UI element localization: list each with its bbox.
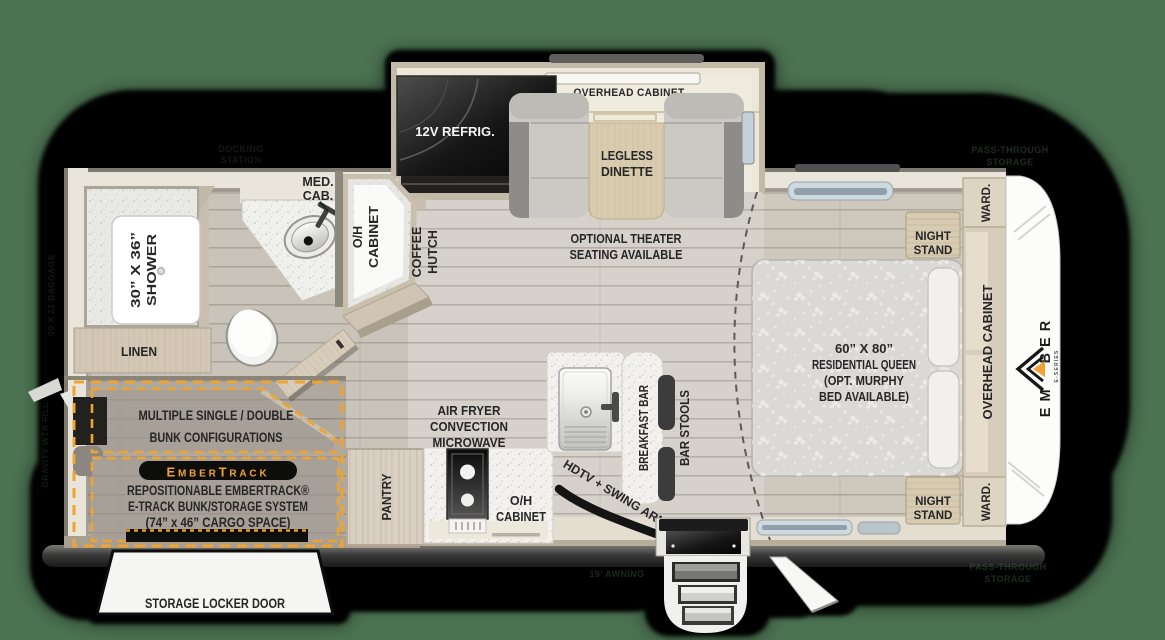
svg-text:30 X 22 BAGGAGE: 30 X 22 BAGGAGE xyxy=(46,254,56,336)
svg-text:12V REFRIG.: 12V REFRIG. xyxy=(415,124,494,139)
svg-text:PASS-THROUGH: PASS-THROUGH xyxy=(969,562,1046,572)
svg-text:STATION: STATION xyxy=(221,155,262,165)
svg-text:STORAGE: STORAGE xyxy=(984,574,1031,584)
svg-text:MICROWAVE: MICROWAVE xyxy=(433,436,506,450)
svg-text:BREAKFAST BAR: BREAKFAST BAR xyxy=(636,385,651,471)
svg-text:SHOWER: SHOWER xyxy=(144,233,159,306)
svg-text:30” X 36”: 30” X 36” xyxy=(128,232,143,308)
svg-text:HUTCH: HUTCH xyxy=(426,230,440,274)
svg-text:19’ AWNING: 19’ AWNING xyxy=(589,569,644,579)
svg-text:COFFEE: COFFEE xyxy=(410,227,424,278)
svg-text:E-TRACK BUNK/STORAGE SYSTEM: E-TRACK BUNK/STORAGE SYSTEM xyxy=(128,499,308,514)
svg-text:LEGLESS: LEGLESS xyxy=(601,148,653,163)
svg-text:MULTIPLE SINGLE / DOUBLE: MULTIPLE SINGLE / DOUBLE xyxy=(139,408,294,423)
svg-text:DOCKING: DOCKING xyxy=(218,144,263,154)
svg-text:WARD.: WARD. xyxy=(981,184,993,222)
svg-text:GRAVITY WTR FILL: GRAVITY WTR FILL xyxy=(40,402,50,487)
svg-text:CAB.: CAB. xyxy=(303,189,334,203)
svg-text:NIGHT: NIGHT xyxy=(915,496,951,508)
svg-text:PANTRY: PANTRY xyxy=(379,473,394,520)
svg-text:MED.: MED. xyxy=(302,175,333,189)
svg-text:WARD.: WARD. xyxy=(981,483,993,521)
svg-text:OVERHEAD CABINET: OVERHEAD CABINET xyxy=(981,284,995,419)
svg-text:O/H: O/H xyxy=(351,226,365,248)
svg-text:STAND: STAND xyxy=(914,510,953,522)
svg-text:RESIDENTIAL QUEEN: RESIDENTIAL QUEEN xyxy=(812,358,916,372)
svg-text:BED AVAILABLE): BED AVAILABLE) xyxy=(819,390,909,404)
svg-text:OPTIONAL THEATER: OPTIONAL THEATER xyxy=(571,231,683,246)
svg-text:LINEN: LINEN xyxy=(121,345,157,359)
svg-text:SEATING AVAILABLE: SEATING AVAILABLE xyxy=(570,247,683,262)
svg-text:CABINET: CABINET xyxy=(496,510,546,524)
svg-text:BAR STOOLS: BAR STOOLS xyxy=(677,390,692,466)
svg-text:(74” x 46” CARGO SPACE): (74” x 46” CARGO SPACE) xyxy=(146,515,291,530)
svg-text:CABINET: CABINET xyxy=(367,206,381,268)
svg-text:STORAGE: STORAGE xyxy=(986,157,1033,167)
svg-text:STAND: STAND xyxy=(914,245,953,257)
svg-text:AIR FRYER: AIR FRYER xyxy=(438,404,501,418)
svg-text:NIGHT: NIGHT xyxy=(915,231,951,243)
svg-text:E-SERIES: E-SERIES xyxy=(1054,350,1060,383)
svg-text:REPOSITIONABLE EMBERTRACK®: REPOSITIONABLE EMBERTRACK® xyxy=(127,483,309,498)
svg-text:DINETTE: DINETTE xyxy=(601,164,653,179)
svg-text:CONVECTION: CONVECTION xyxy=(430,420,508,434)
svg-text:PASS-THROUGH: PASS-THROUGH xyxy=(971,145,1048,155)
svg-text:O/H: O/H xyxy=(510,494,532,508)
svg-text:BUNK CONFIGURATIONS: BUNK CONFIGURATIONS xyxy=(150,430,283,445)
svg-text:(OPT. MURPHY: (OPT. MURPHY xyxy=(824,374,905,388)
svg-text:STORAGE LOCKER DOOR: STORAGE LOCKER DOOR xyxy=(145,596,285,611)
svg-text:60” X 80”: 60” X 80” xyxy=(835,342,893,356)
